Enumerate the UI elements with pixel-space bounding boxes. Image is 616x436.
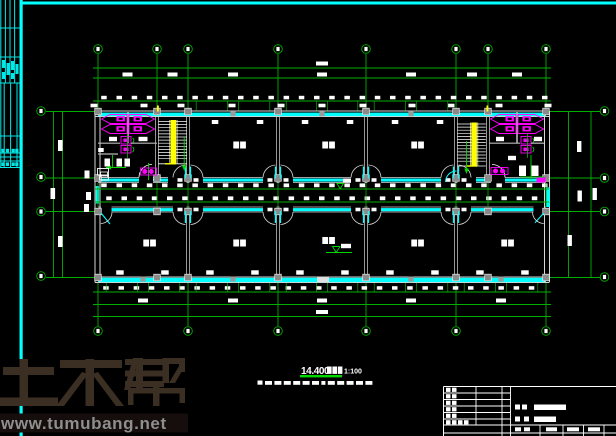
svg-text:www.tumubang.net: www.tumubang.net xyxy=(0,414,167,433)
svg-text:1:100: 1:100 xyxy=(344,369,362,376)
